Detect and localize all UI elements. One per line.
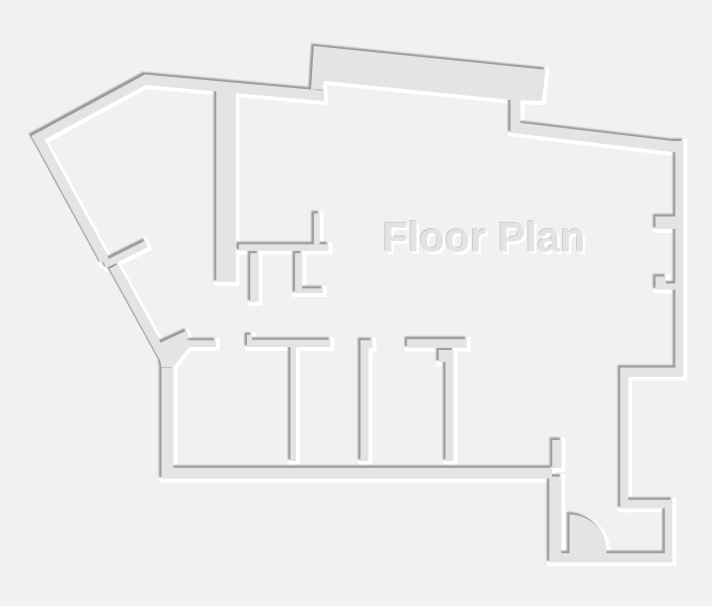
svg-text:Floor Plan: Floor Plan — [383, 214, 586, 261]
